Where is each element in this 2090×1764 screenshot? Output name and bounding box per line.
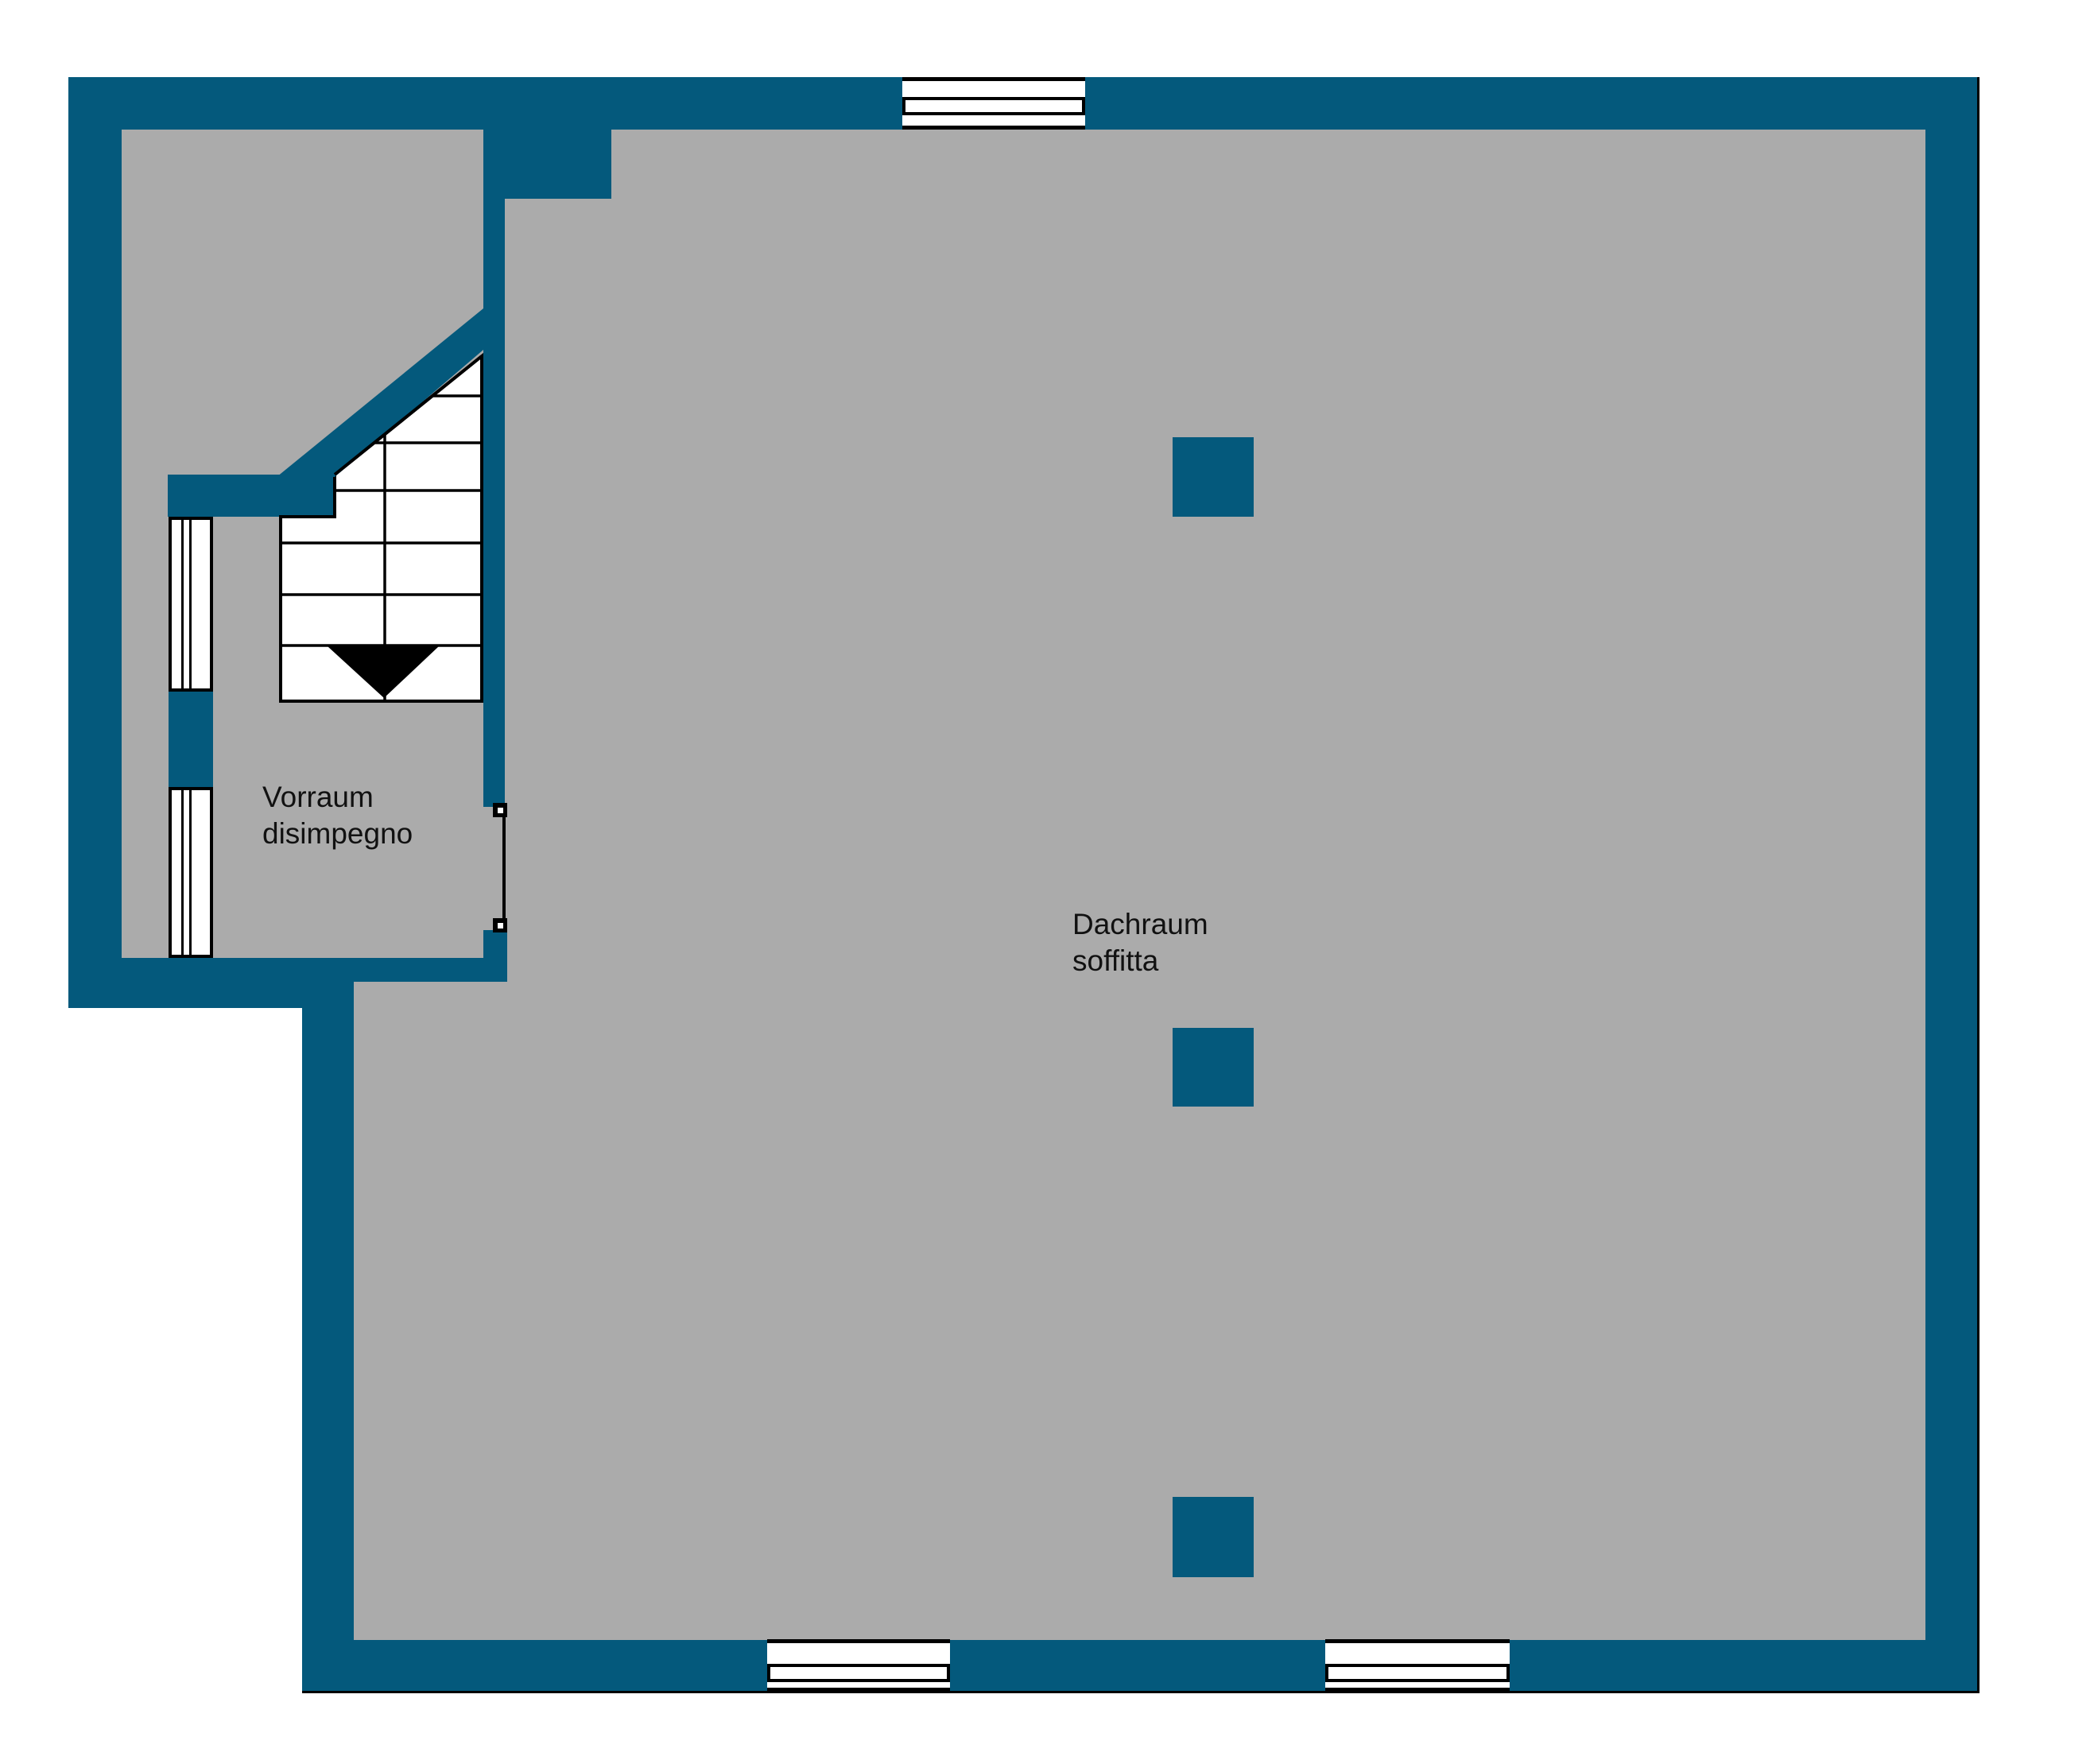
door (493, 803, 507, 932)
room-label-vorraum-line2: disimpegno (262, 816, 413, 852)
room-label-dachraum-line2: soffitta (1072, 943, 1208, 979)
room-label-vorraum: Vorraum disimpegno (262, 779, 413, 852)
room-label-vorraum-line1: Vorraum (262, 779, 413, 816)
floorplan: Vorraum disimpegno Dachraum soffitta (0, 0, 2090, 1764)
staircase-layer (0, 0, 2090, 1764)
room-label-dachraum: Dachraum soffitta (1072, 906, 1208, 979)
room-label-dachraum-line1: Dachraum (1072, 906, 1208, 943)
